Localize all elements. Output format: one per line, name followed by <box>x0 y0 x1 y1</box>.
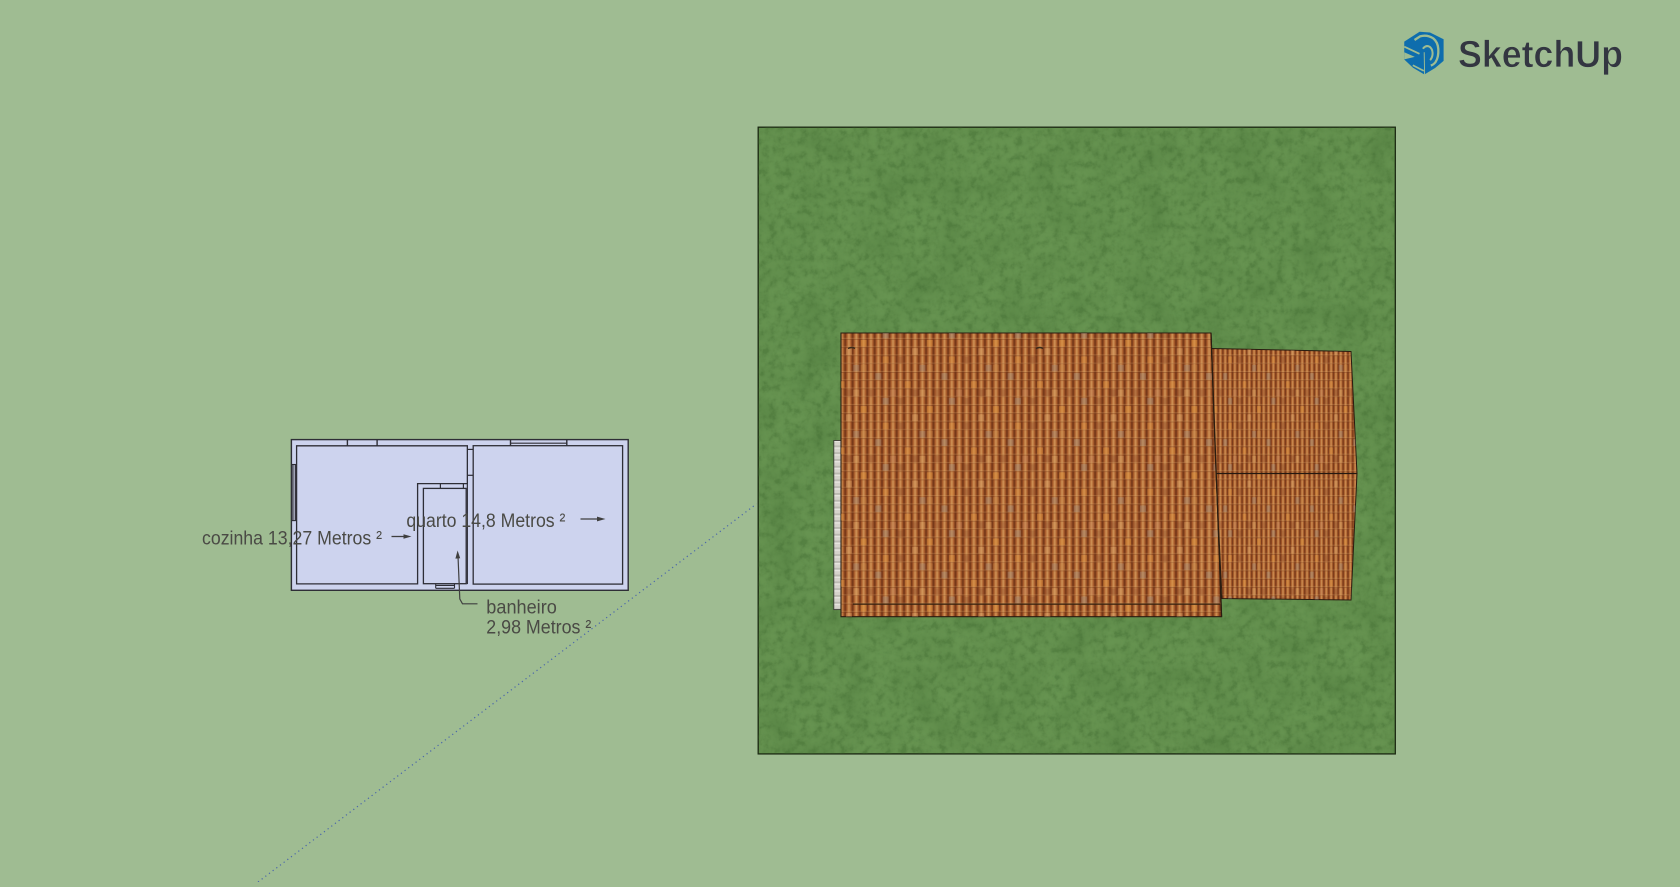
svg-text:SketchUp: SketchUp <box>1458 34 1623 76</box>
svg-text:banheiro: banheiro <box>486 597 557 618</box>
svg-text:quarto 14,8 Metros ²: quarto 14,8 Metros ² <box>406 511 565 532</box>
svg-text:2,98 Metros ²: 2,98 Metros ² <box>486 618 591 639</box>
svg-text:cozinha 13,27 Metros ²: cozinha 13,27 Metros ² <box>202 529 382 550</box>
